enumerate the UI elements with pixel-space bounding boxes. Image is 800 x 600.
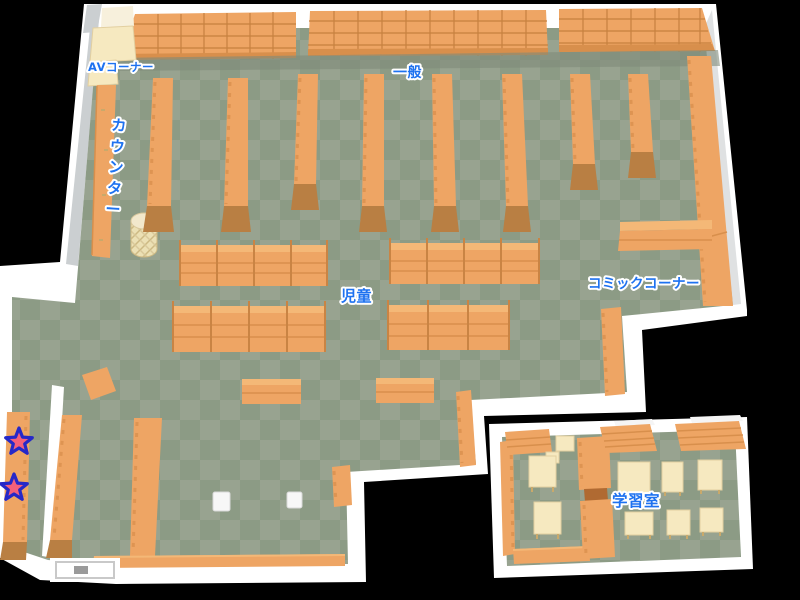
comic-shelf-top bbox=[618, 220, 712, 251]
annex-bottomleft-shelf bbox=[513, 546, 590, 564]
annex-left-desk-2 bbox=[534, 502, 561, 534]
av-unit-front bbox=[90, 26, 136, 62]
kids-shelf-bank-b2 bbox=[388, 300, 510, 350]
comic-shelf-wall-1 bbox=[601, 307, 625, 396]
area-label-comic-corner: コミックコーナー bbox=[588, 276, 700, 292]
kids-small-shelf-2 bbox=[376, 378, 434, 403]
study-desk-2 bbox=[662, 462, 683, 492]
kids-shelf-bank-a bbox=[180, 240, 328, 286]
area-label-children: 児童 bbox=[340, 287, 372, 305]
library-floor-map: AVコーナー 一般 カウンター 児童 コミックコーナー 学習室 bbox=[0, 0, 800, 600]
study-desk-1 bbox=[618, 462, 650, 493]
kids-shelf-bank-b bbox=[173, 301, 326, 352]
entrance-door bbox=[50, 558, 120, 582]
reading-stool-2 bbox=[287, 492, 302, 508]
study-desk-5 bbox=[667, 510, 690, 535]
annex-left-desk-1 bbox=[529, 456, 556, 487]
annex-topleft-shelf bbox=[505, 429, 552, 455]
bottom-wall-shelf-strip bbox=[92, 554, 345, 568]
kids-shelf-bank-a2 bbox=[390, 238, 540, 284]
area-label-general: 一般 bbox=[393, 64, 422, 81]
study-desk-6 bbox=[700, 508, 723, 532]
kids-small-shelf-1 bbox=[242, 379, 301, 404]
area-label-study-room: 学習室 bbox=[612, 491, 660, 510]
annex-cream-box-1 bbox=[556, 436, 574, 451]
study-desk-3 bbox=[698, 460, 722, 490]
reading-stool-1 bbox=[213, 492, 230, 511]
wall-shelf-bank-2 bbox=[308, 10, 548, 56]
comic-shelf-wall-3 bbox=[332, 465, 352, 507]
wall-shelf-bank-1 bbox=[118, 12, 296, 60]
door-leaf bbox=[74, 566, 88, 574]
area-label-av-corner: AVコーナー bbox=[88, 60, 154, 74]
av-unit-cap bbox=[101, 6, 134, 27]
wall-shelf-bank-3 bbox=[559, 8, 715, 52]
study-desk-4 bbox=[625, 512, 653, 535]
